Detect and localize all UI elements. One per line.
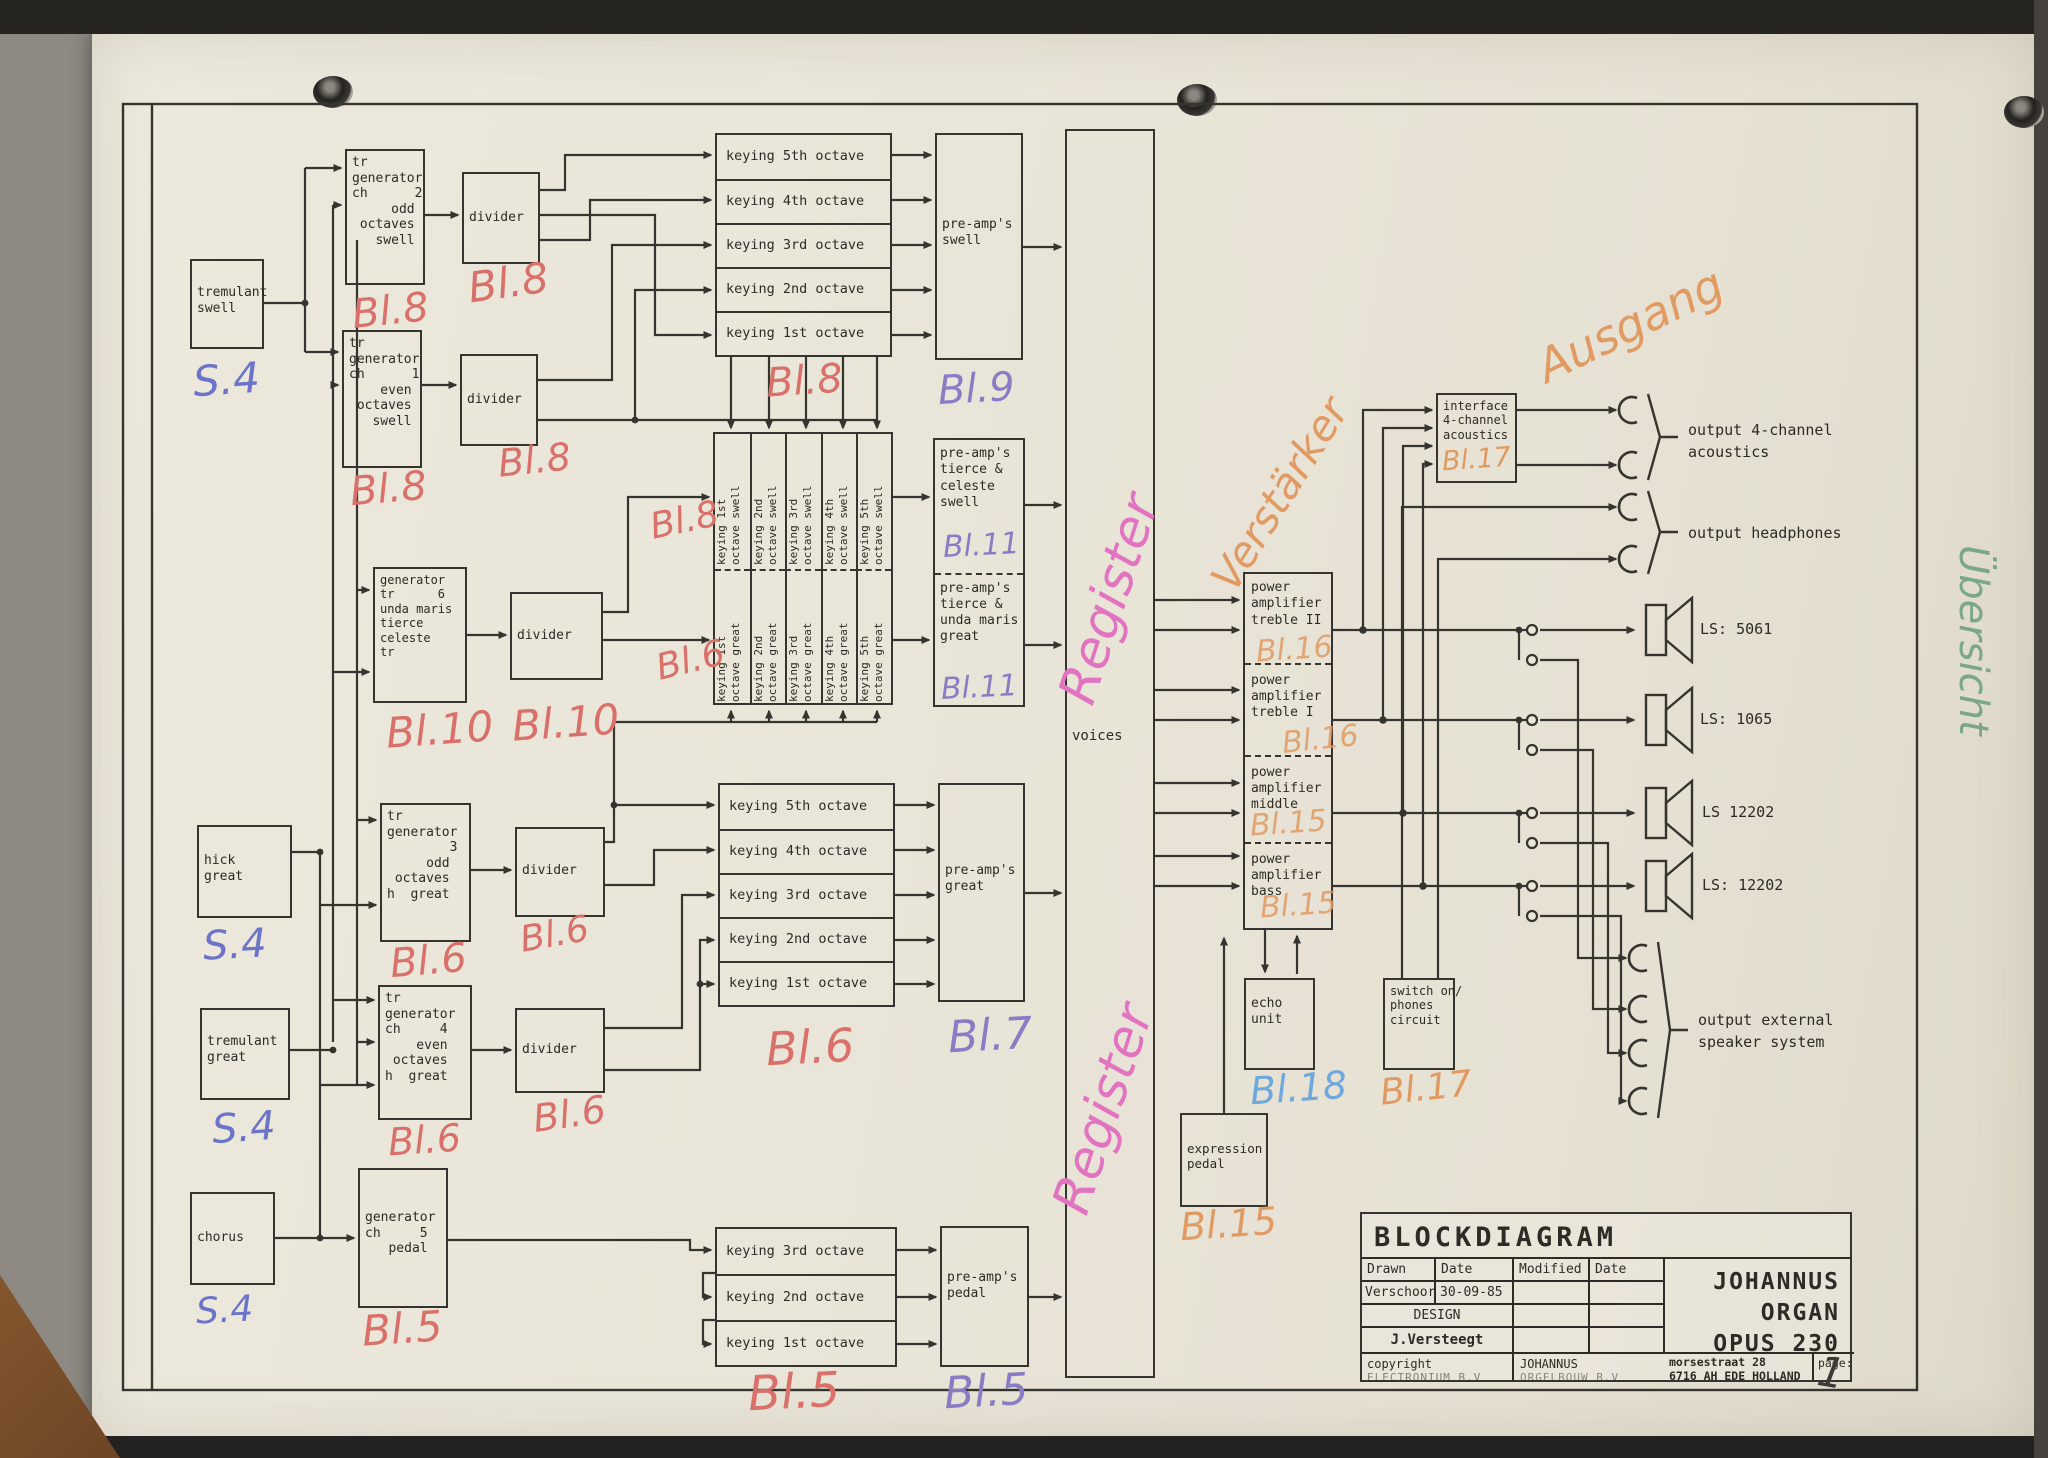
matrix-cell: keying 4th octave swell — [821, 434, 856, 569]
speaker-label-ls1065: LS: 1065 — [1700, 710, 1772, 728]
keying-stack-pedal: keying 3rd octave keying 2nd octave keyi… — [715, 1227, 897, 1367]
modified-empty-row — [1590, 1282, 1665, 1305]
speaker-icons — [1646, 598, 1692, 918]
matrix-cell-label: keying 1st octave swell — [715, 435, 747, 565]
organ-name-cell: JOHANNUS ORGAN OPUS 230 — [1665, 1259, 1854, 1354]
block-generator-4-even-octaves-great: tr generator ch 4 even octaves h great — [378, 985, 472, 1120]
modified-label: Modified — [1514, 1259, 1590, 1282]
block-preamp-great: pre-amp's great — [938, 783, 1025, 1002]
block-divider-swell-odd: divider — [462, 172, 540, 264]
modified-empty-row — [1590, 1305, 1665, 1328]
maker-cell: JOHANNUS ORGELBOUW B.V — [1514, 1354, 1665, 1381]
voices-label: voices — [1072, 728, 1123, 745]
block-divider-swell-even: divider — [460, 354, 538, 446]
jack-connector-icons — [1619, 397, 1647, 1114]
block-echo-unit: echo unit — [1244, 978, 1315, 1070]
matrix-cell-label: keying 3rd octave swell — [787, 435, 819, 565]
keying-row: keying 5th octave — [720, 785, 893, 829]
speaker-label-ls5061: LS: 5061 — [1700, 620, 1772, 638]
block-expression-pedal: expression pedal — [1180, 1113, 1268, 1207]
modified-empty-row — [1514, 1282, 1590, 1305]
matrix-cell-label: keying 4th octave great — [823, 572, 855, 702]
keying-stack-great: keying 5th octave keying 4th octave keyi… — [718, 783, 895, 1007]
matrix-cell: keying 4th octave great — [821, 569, 856, 704]
keying-row: keying 3rd octave — [717, 1229, 895, 1274]
copyright-cell: copyright ELECTRONIUM B.V — [1362, 1354, 1514, 1381]
output-4channel-label: output 4-channel acoustics — [1688, 420, 1833, 464]
block-power-amplifier-bass: power amplifier bass — [1245, 842, 1331, 928]
block-tremulant-great: tremulant great — [200, 1008, 290, 1100]
block-generator-5-pedal: generator ch 5 pedal — [358, 1168, 448, 1308]
matrix-cell: keying 1st octave swell — [715, 434, 750, 569]
scanned-blockdiagram-photo: tremulant swell tr generator ch 2 odd oc… — [0, 0, 2048, 1458]
keying-row: keying 4th octave — [717, 179, 890, 223]
matrix-cell: keying 5th octave swell — [856, 434, 891, 569]
address-cell: morsestraat 28 6716 AH EDE HOLLAND — [1665, 1354, 1814, 1381]
block-divider-tierce: divider — [510, 592, 603, 680]
modified-empty-row — [1514, 1305, 1590, 1328]
matrix-cell: keying 2nd octave swell — [750, 434, 785, 569]
switch-contact-icons — [1527, 625, 1537, 921]
matrix-cell-label: keying 5th octave swell — [858, 435, 890, 565]
title-block: BLOCKDIAGRAM Drawn Date Verschoor 30-09-… — [1360, 1212, 1852, 1382]
address-line2: 6716 AH EDE HOLLAND — [1669, 1370, 1812, 1381]
speaker-label-ls12202: LS 12202 — [1702, 803, 1774, 821]
page-label: page: — [1818, 1356, 1854, 1370]
speaker-label-ls12202b: LS: 12202 — [1702, 876, 1783, 894]
block-preamp-swell: pre-amp's swell — [935, 133, 1023, 360]
keying-row: keying 1st octave — [717, 311, 890, 355]
block-chorus: chorus — [190, 1192, 275, 1285]
block-power-amplifier-treble1: power amplifier treble I — [1245, 663, 1331, 755]
matrix-cell-label: keying 2nd octave swell — [752, 435, 784, 565]
block-hick-great: hick great — [197, 825, 292, 918]
drawn-by-value: Verschoor — [1362, 1282, 1436, 1305]
block-power-amplifier-treble2: power amplifier treble II — [1245, 574, 1331, 663]
matrix-cell: keying 5th octave great — [856, 569, 891, 704]
keying-stack-swell: keying 5th octave keying 4th octave keyi… — [715, 133, 892, 357]
page-cell: page: — [1814, 1354, 1854, 1381]
keying-row: keying 5th octave — [717, 135, 890, 179]
modified-empty-row — [1514, 1328, 1590, 1354]
preamp-tierce-stack: pre-amp's tierce & celeste swell pre-amp… — [933, 438, 1025, 707]
keying-row: keying 4th octave — [720, 829, 893, 873]
block-generator-6-unda-maris: generator tr 6 unda maris tierce celeste… — [373, 567, 467, 703]
matrix-cell-label: keying 5th octave great — [858, 572, 890, 702]
keying-matrix-swell-great: keying 1st octave swell keying 2nd octav… — [713, 432, 893, 705]
keying-row: keying 3rd octave — [717, 223, 890, 267]
organ-brand: JOHANNUS — [1665, 1267, 1840, 1298]
keying-row: keying 2nd octave — [717, 267, 890, 311]
matrix-cell: keying 2nd octave great — [750, 569, 785, 704]
matrix-cell: keying 3rd octave great — [785, 569, 820, 704]
designer-value: J.Versteegt — [1362, 1328, 1514, 1354]
block-generator-2-odd-octaves-swell: tr generator ch 2 odd octaves swell — [345, 149, 425, 285]
date-label: Date — [1436, 1259, 1514, 1282]
maker-name2: ORGELBOUW B.V — [1520, 1371, 1665, 1381]
matrix-cell-label: keying 3rd octave great — [787, 572, 819, 702]
design-label: DESIGN — [1362, 1305, 1514, 1328]
block-power-amplifier-middle: power amplifier middle — [1245, 755, 1331, 842]
power-amplifier-stack: power amplifier treble II power amplifie… — [1243, 572, 1333, 930]
block-preamp-tierce-celeste-swell: pre-amp's tierce & celeste swell — [935, 440, 1023, 573]
output-group-brackets — [1648, 394, 1688, 1118]
date2-label: Date — [1590, 1259, 1665, 1282]
title-block-title: BLOCKDIAGRAM — [1362, 1214, 1850, 1259]
block-generator-3-odd-octaves-great: tr generator 3 odd octaves h great — [380, 803, 471, 942]
organ-type: ORGAN — [1665, 1298, 1840, 1329]
keying-row: keying 3rd octave — [720, 873, 893, 917]
keying-row: keying 1st octave — [720, 961, 893, 1005]
address-line1: morsestraat 28 — [1669, 1356, 1812, 1370]
block-switch-on-phones-circuit: switch on/ phones circuit — [1383, 978, 1455, 1070]
block-generator-1-even-octaves-swell: tr generator ch 1 even octaves swell — [342, 330, 422, 468]
keying-row: keying 2nd octave — [717, 1274, 895, 1319]
block-voices-bus — [1065, 129, 1155, 1378]
maker-name: JOHANNUS — [1520, 1357, 1665, 1371]
output-external-label: output external speaker system — [1698, 1010, 1833, 1054]
drawn-date-value: 30-09-85 — [1436, 1282, 1514, 1305]
modified-empty-row — [1590, 1328, 1665, 1354]
copyright-company: ELECTRONIUM B.V — [1367, 1371, 1512, 1381]
output-headphones-label: output headphones — [1688, 524, 1842, 542]
drawn-label: Drawn — [1362, 1259, 1436, 1282]
matrix-cell: keying 3rd octave swell — [785, 434, 820, 569]
block-preamp-pedal: pre-amp's pedal — [940, 1226, 1029, 1367]
copyright-label: copyright — [1367, 1357, 1512, 1371]
block-divider-great-odd: divider — [515, 827, 605, 917]
matrix-cell-label: keying 2nd octave great — [752, 572, 784, 702]
block-interface-4channel-acoustics: interface 4-channel acoustics — [1436, 393, 1517, 483]
matrix-cell-label: keying 1st octave great — [715, 572, 747, 702]
matrix-cell: keying 1st octave great — [715, 569, 750, 704]
matrix-cell-label: keying 4th octave swell — [823, 435, 855, 565]
block-tremulant-swell: tremulant swell — [190, 259, 264, 349]
keying-row: keying 2nd octave — [720, 917, 893, 961]
keying-row: keying 1st octave — [717, 1320, 895, 1365]
block-preamp-tierce-unda-maris-great: pre-amp's tierce & unda maris great — [935, 573, 1023, 706]
block-divider-great-even: divider — [515, 1008, 605, 1093]
